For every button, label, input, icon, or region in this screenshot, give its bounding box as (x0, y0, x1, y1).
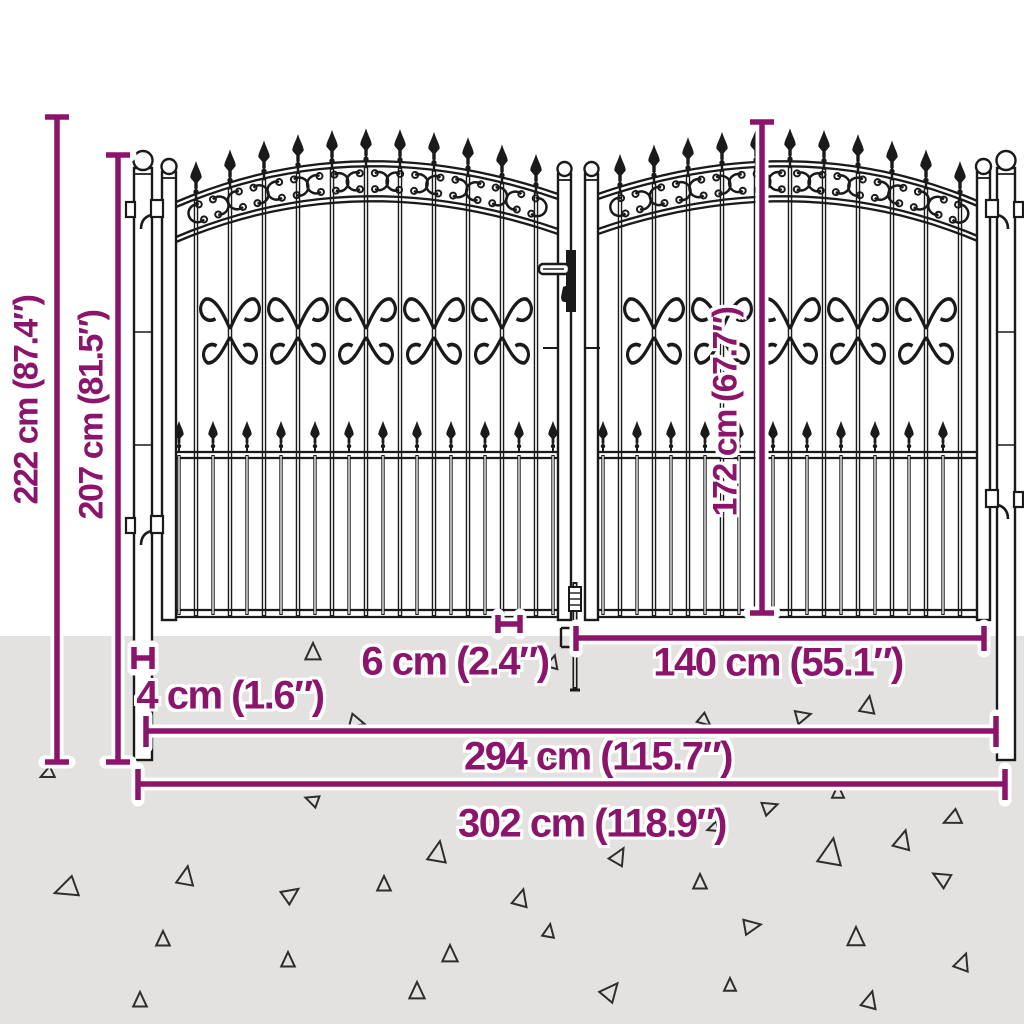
scroll-cell (306, 170, 349, 196)
spear-finial (904, 421, 913, 452)
left-leaf-hanging-stile (161, 159, 177, 620)
scroll-cell (185, 192, 231, 226)
dim-label-ground-clearance: 6 cm (2.4″) (361, 640, 548, 685)
right-leaf-closing-stile (584, 162, 599, 620)
scroll-cell (847, 174, 891, 203)
spear-finial (310, 421, 319, 452)
diagram-canvas (0, 0, 1024, 1024)
spear-finial (632, 421, 641, 452)
spear-finial (870, 421, 879, 452)
scroll-cell (386, 170, 429, 195)
spear-finial (208, 421, 217, 452)
dim-label-leaf-height: 172 cm (67.7″) (707, 308, 746, 517)
right-gate-leaf (598, 128, 980, 617)
spear-finial (480, 421, 489, 452)
product-dimension-diagram: 222 cm (87.4″) 207 cm (81.5″) 172 cm (67… (0, 0, 1024, 1024)
dim-label-width-between-posts: 294 cm (115.7″) (464, 735, 732, 780)
spear-finial (412, 421, 421, 452)
spear-finial (768, 421, 777, 452)
scroll-cell (808, 171, 851, 197)
spear-finial (446, 421, 455, 452)
spear-finial (514, 421, 523, 452)
dim-label-leaf-width: 140 cm (55.1″) (653, 641, 902, 686)
scroll-cell (425, 173, 469, 201)
scroll-cell (266, 174, 310, 203)
right-fence-post (996, 151, 1016, 760)
right-leaf-hanging-stile (976, 159, 991, 620)
spear-finial (242, 421, 251, 452)
scroll-cell (688, 173, 732, 201)
left-gate-leaf (174, 128, 558, 617)
spear-finial (802, 421, 811, 452)
dim-label-post-width: 4 cm (1.6″) (136, 674, 323, 719)
spear-finial (938, 421, 947, 452)
spear-finial (666, 421, 675, 452)
left-leaf-closing-stile (557, 162, 572, 620)
dim-label-post-height: 207 cm (81.5″) (73, 311, 112, 520)
spear-finial (276, 421, 285, 452)
spear-finial (548, 421, 557, 452)
spear-finial (836, 421, 845, 452)
dim-label-total-width: 302 cm (118.9″) (458, 802, 726, 847)
spear-finial (344, 421, 353, 452)
dim-label-total-height: 222 cm (87.4″) (8, 296, 47, 505)
spear-finial (378, 421, 387, 452)
scroll-cell (925, 192, 971, 226)
dim-marker-ground-clearance (498, 615, 520, 633)
spear-finial (598, 421, 607, 452)
